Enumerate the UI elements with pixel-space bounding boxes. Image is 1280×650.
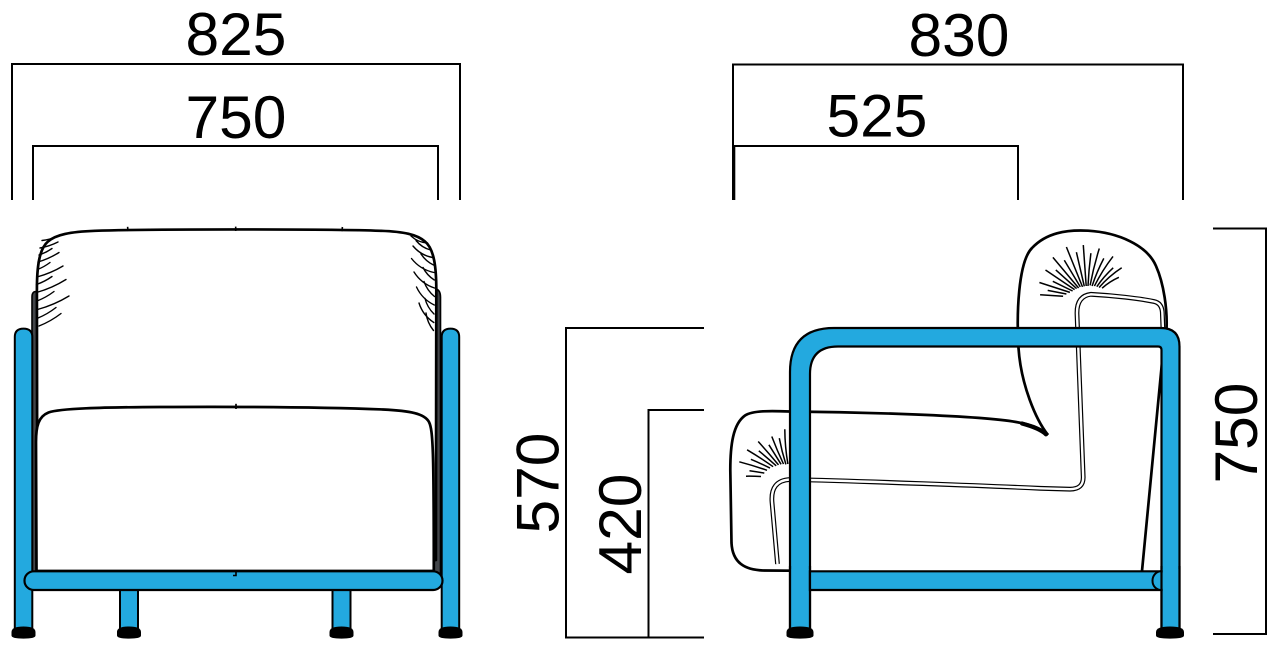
svg-text:750: 750 (1202, 383, 1270, 484)
svg-text:420: 420 (586, 474, 654, 575)
svg-text:570: 570 (504, 433, 572, 534)
svg-text:525: 525 (827, 82, 928, 150)
svg-text:830: 830 (909, 1, 1010, 69)
svg-text:750: 750 (186, 83, 287, 151)
svg-text:825: 825 (186, 0, 287, 68)
